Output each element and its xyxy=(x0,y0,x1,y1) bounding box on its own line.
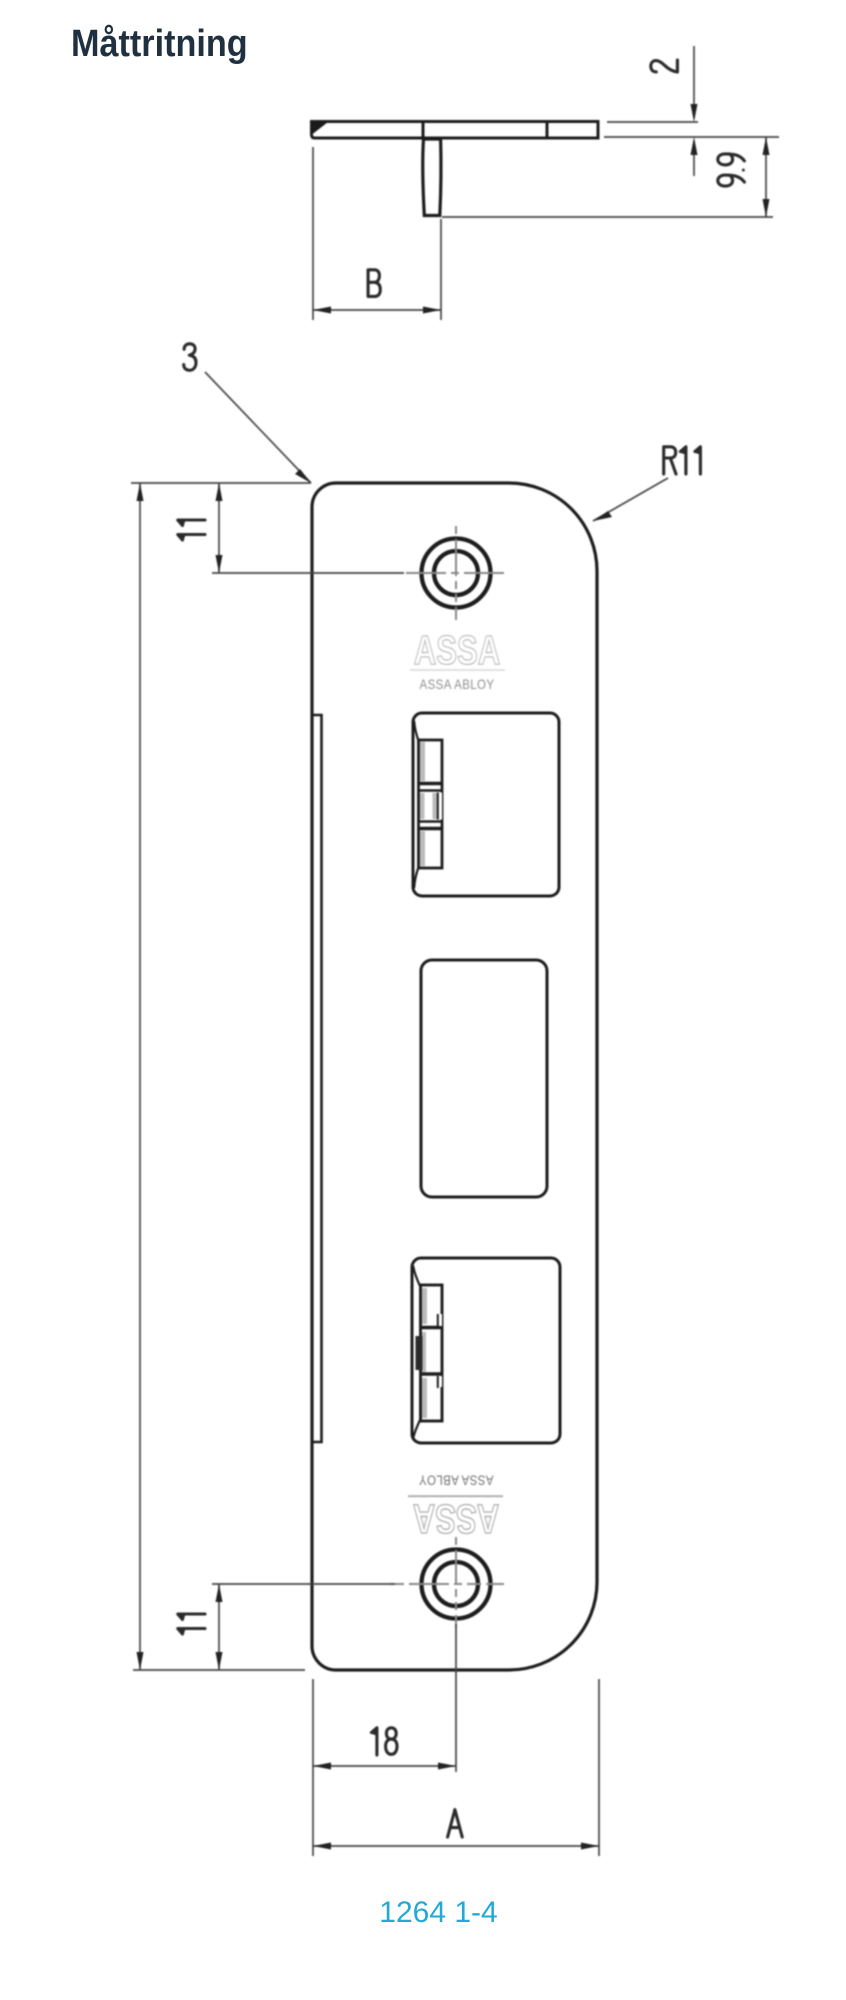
svg-text:ASSA: ASSA xyxy=(413,1496,500,1542)
svg-text:ASSA ABLOY: ASSA ABLOY xyxy=(419,1472,494,1488)
svg-text:ASSA ABLOY: ASSA ABLOY xyxy=(420,676,495,692)
svg-text:ASSA: ASSA xyxy=(414,627,501,673)
